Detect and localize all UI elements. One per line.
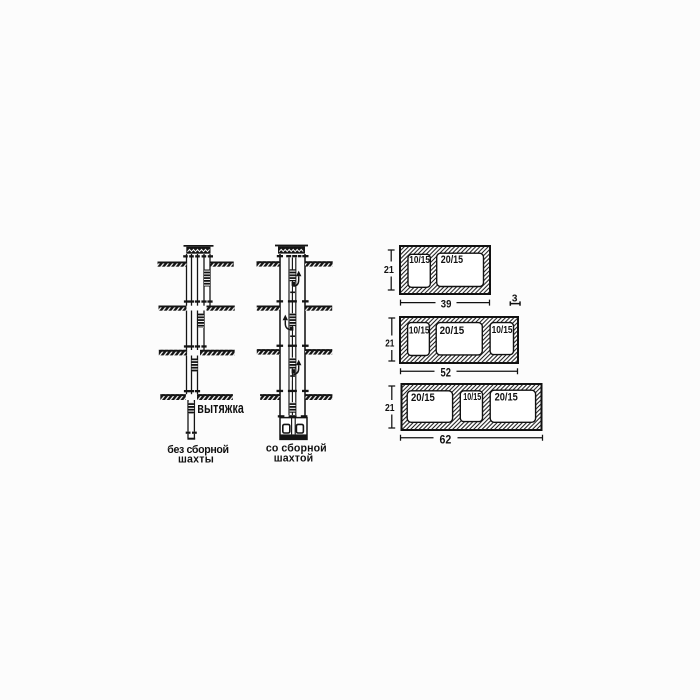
svg-text:52: 52 bbox=[441, 368, 451, 380]
svg-text:20/15: 20/15 bbox=[441, 254, 463, 266]
svg-text:10/15: 10/15 bbox=[463, 392, 481, 403]
svg-text:шахты: шахты bbox=[178, 454, 214, 466]
svg-text:20/15: 20/15 bbox=[495, 391, 518, 403]
svg-text:шахтой: шахтой bbox=[274, 453, 314, 465]
svg-text:21: 21 bbox=[385, 403, 395, 414]
svg-text:10/15: 10/15 bbox=[409, 255, 430, 266]
svg-text:10/15: 10/15 bbox=[409, 326, 430, 337]
svg-text:39: 39 bbox=[441, 299, 452, 311]
svg-text:21: 21 bbox=[384, 265, 394, 276]
svg-text:20/15: 20/15 bbox=[440, 325, 465, 337]
svg-text:3: 3 bbox=[512, 293, 518, 304]
svg-text:вытяжка: вытяжка bbox=[197, 401, 244, 417]
svg-text:62: 62 bbox=[440, 432, 452, 446]
svg-text:21: 21 bbox=[385, 338, 395, 349]
svg-text:10/15: 10/15 bbox=[492, 325, 513, 336]
svg-text:20/15: 20/15 bbox=[411, 392, 435, 404]
